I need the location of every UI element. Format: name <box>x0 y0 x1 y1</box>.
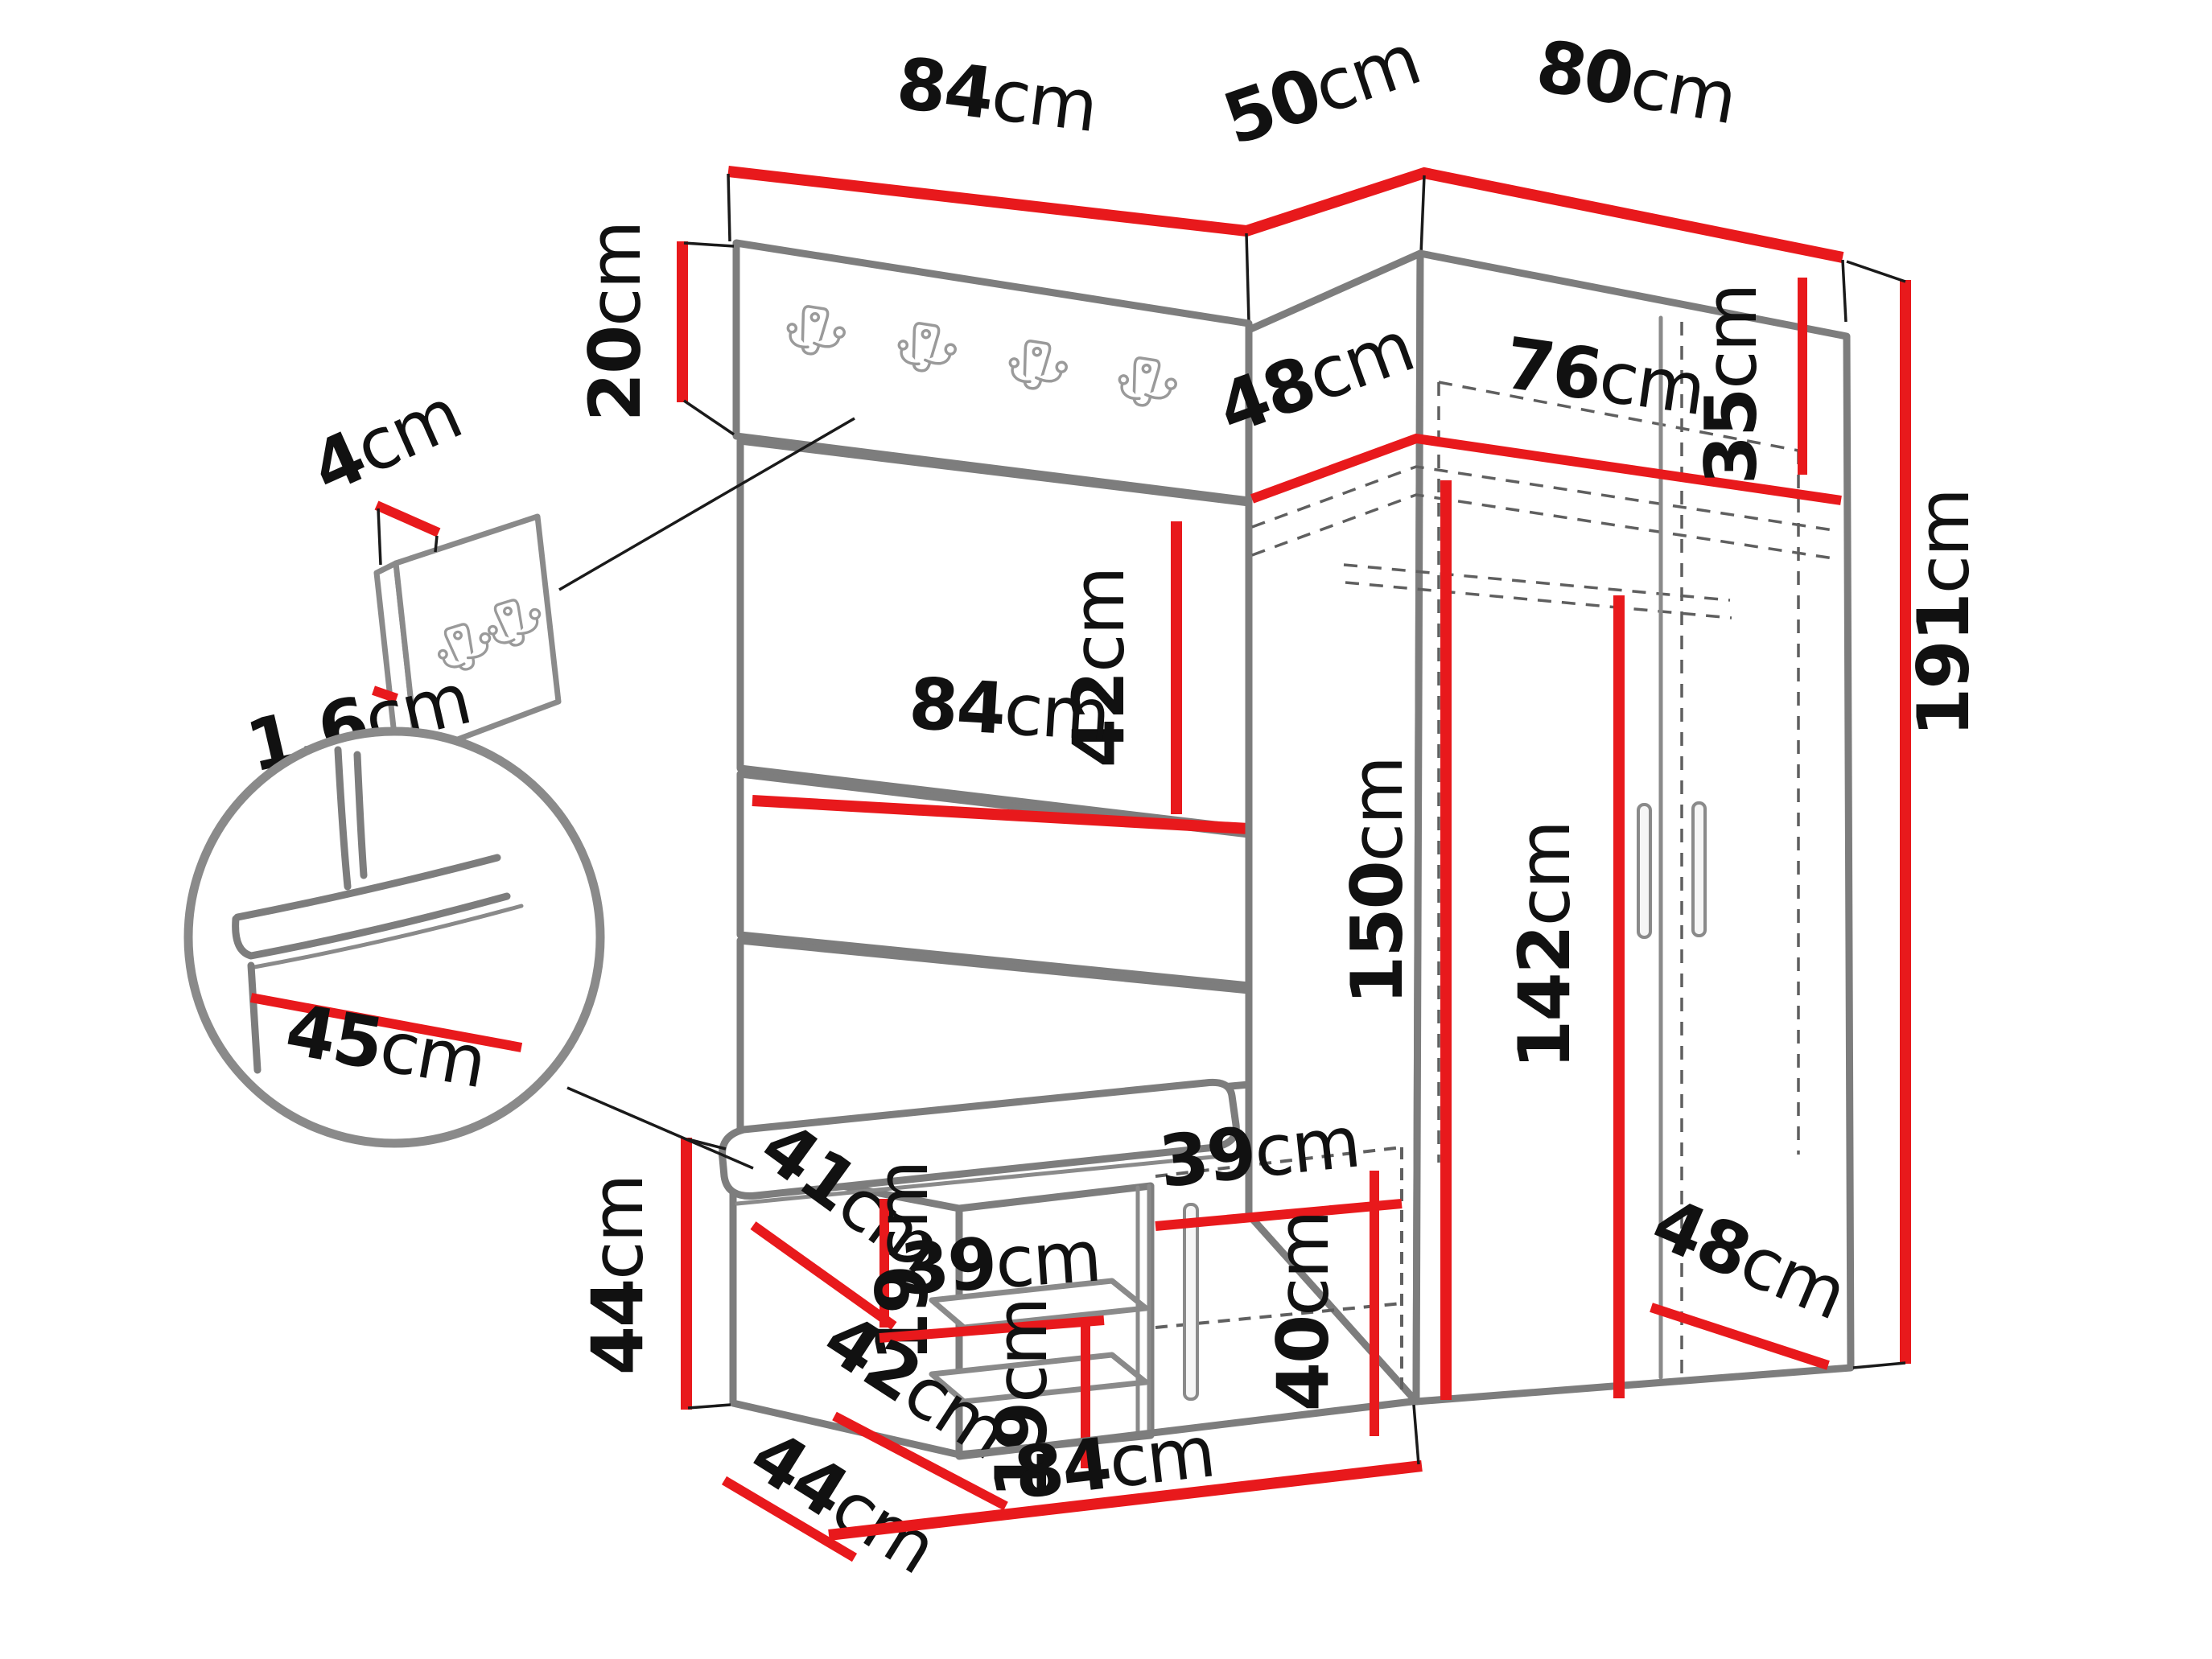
extension-line <box>1847 261 1905 282</box>
extension-line <box>1843 260 1846 322</box>
wall-panel: 20cm 42cm 84cm <box>574 222 1249 1130</box>
dim-label-inner-height: 150cm <box>1336 757 1419 1005</box>
dim-label-wardrobe-width: 80cm <box>1530 24 1742 141</box>
furniture-dimension-diagram: 84cm 50cm 80cm 4cm 1,6cm 20cm 42cm <box>0 0 2212 1659</box>
dim-label-total-height: 191cm <box>1902 489 1985 737</box>
diagram-page: 84cm 50cm 80cm 4cm 1,6cm 20cm 42cm <box>0 0 2212 1659</box>
dim-label-bench-door-height: 40cm <box>1262 1212 1345 1412</box>
dim-label-bench-shelf-width: 39cm <box>897 1215 1102 1311</box>
dim-label-hook-panel-width: 84cm <box>892 41 1101 148</box>
detail-pointer-line <box>567 1088 753 1168</box>
door-handle <box>1638 805 1650 937</box>
extension-line <box>378 508 381 565</box>
extension-line <box>435 536 437 552</box>
extension-line <box>688 1405 731 1408</box>
extension-line <box>684 401 734 434</box>
mini-hook-panel: 4cm 1,6cm <box>239 373 558 788</box>
extension-line <box>1853 1363 1905 1368</box>
extension-line <box>728 174 730 241</box>
extension-line <box>1421 175 1424 253</box>
bench-door-handle <box>1184 1204 1197 1399</box>
top-dimension-line <box>728 171 1843 257</box>
extension-line <box>1414 1405 1419 1464</box>
dim-label-mini-panel-width: 4cm <box>299 373 472 510</box>
dim-label-top-shelf-height: 35cm <box>1690 285 1773 485</box>
dim-label-panel-width-mid: 84cm <box>907 662 1111 757</box>
seat-corner-detail: 45cm <box>188 731 600 1143</box>
extension-line <box>1246 233 1249 322</box>
dim-label-hook-strip-height: 20cm <box>574 222 657 422</box>
dim-label-door-height: 142cm <box>1503 821 1586 1069</box>
dim-label-corner-gap: 50cm <box>1213 18 1430 161</box>
door-handle <box>1693 803 1705 936</box>
dim-label-bench-height: 44cm <box>576 1175 659 1376</box>
extension-line <box>684 243 734 246</box>
mini-panel-width-line <box>377 505 439 533</box>
